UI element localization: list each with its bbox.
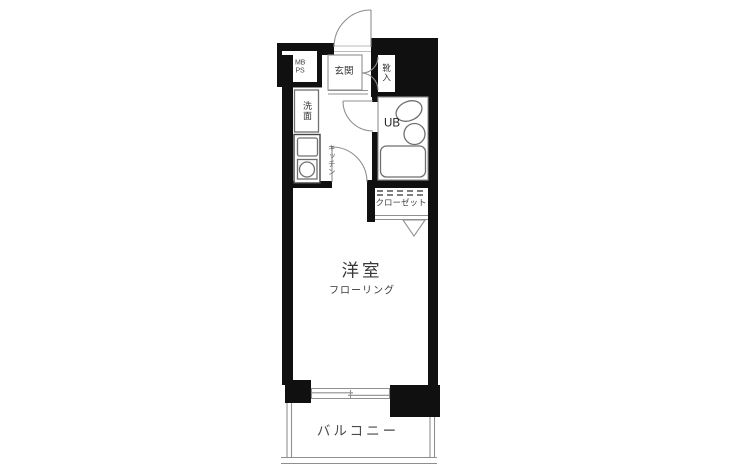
kitchen-label: キッチン: [327, 144, 335, 176]
wall-closet-left: [367, 188, 375, 222]
meter-box-label: MB PS: [295, 59, 305, 74]
kitchen-sink-icon: [298, 138, 318, 156]
closet-label: クローゼット: [375, 198, 426, 207]
closet-door-marker: [403, 220, 425, 236]
washroom-label: 洗面: [301, 101, 311, 121]
flooring-label: フローリング: [329, 286, 395, 297]
meter-box-line1: MB: [295, 59, 305, 67]
kitchen-burner-icon: [300, 162, 315, 177]
room-door-swing: [332, 147, 367, 182]
bath-door-swing: [343, 101, 373, 131]
wall-left: [282, 55, 293, 385]
floor-plan-drawing: [0, 0, 730, 470]
main-room-label: 洋室: [342, 261, 383, 280]
floor-plan-canvas: MB PS 玄関 靴入 洗面 キッチン UB クローゼット 洋室 フローリング …: [0, 0, 730, 470]
wall-bottom-left-block: [285, 380, 311, 403]
unit-bath-room: [378, 97, 428, 180]
unit-bath-label: UB: [384, 118, 400, 131]
entrance-label: 玄関: [334, 67, 353, 77]
basin-icon: [404, 124, 425, 145]
wall-bottom-right-block: [390, 385, 440, 417]
shoe-cabinet-label: 靴入: [381, 64, 390, 83]
entrance-area: [328, 10, 378, 94]
balcony-label: バルコニー: [317, 425, 399, 440]
wall-mid-right: [367, 180, 428, 188]
meter-box-line2: PS: [295, 67, 305, 75]
entrance-door-swing: [334, 10, 371, 47]
balcony-window: [311, 389, 390, 399]
wall-bath-left-lower: [372, 132, 378, 180]
wall-right: [428, 95, 438, 387]
bathtub-icon: [381, 146, 426, 177]
